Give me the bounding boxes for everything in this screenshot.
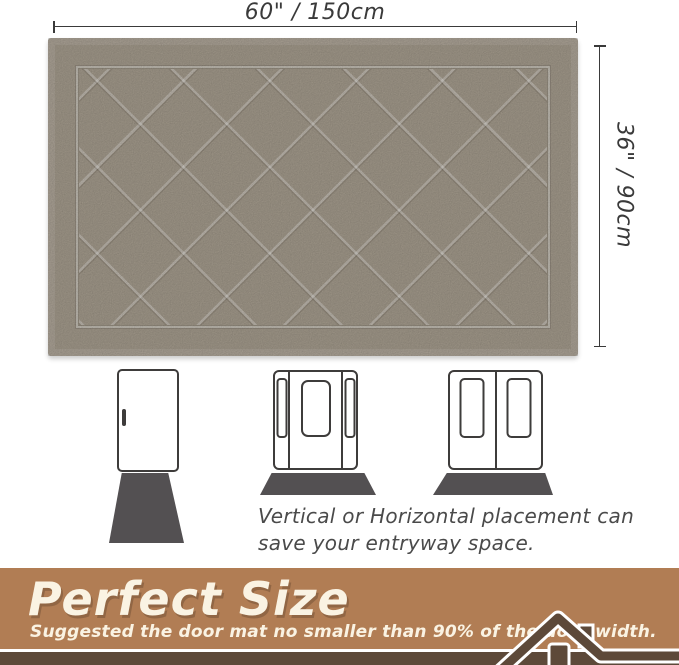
sidelight-window — [276, 378, 287, 438]
left-door-leaf — [450, 372, 496, 468]
double-door-icon — [448, 370, 543, 470]
width-dimension-label: 60" / 150cm — [245, 0, 386, 25]
door-window — [506, 378, 531, 438]
horizontal-mat-placement — [260, 473, 376, 495]
horizontal-mat-placement — [433, 473, 553, 495]
house-roof-icon — [495, 610, 679, 665]
width-dimension-line — [53, 26, 577, 27]
center-door-panel — [290, 372, 341, 468]
mat-texture-grain — [48, 38, 578, 356]
product-infographic: 60" / 150cm 36" / 90cm — [0, 0, 679, 665]
height-dimension-line — [599, 45, 600, 347]
left-sidelight — [275, 372, 290, 468]
door-handle — [122, 409, 126, 426]
placement-note-line1: Vertical or Horizontal placement can — [258, 503, 634, 530]
sidelight-window — [344, 378, 355, 438]
placement-note-line2: save your entryway space. — [258, 530, 634, 557]
perfect-size-banner: Perfect Size Suggested the door mat no s… — [0, 568, 679, 665]
banner-title: Perfect Size — [28, 572, 350, 626]
height-dimension-label: 36" / 90cm — [612, 122, 637, 248]
single-door-icon — [117, 369, 179, 472]
door-mat-photo — [48, 38, 578, 356]
door-window — [301, 380, 331, 437]
right-door-leaf — [496, 372, 542, 468]
right-sidelight — [341, 372, 356, 468]
door-with-sidelights-icon — [273, 370, 358, 470]
placement-note: Vertical or Horizontal placement can sav… — [258, 503, 634, 557]
door-window — [460, 378, 485, 438]
vertical-mat-placement — [109, 473, 184, 543]
